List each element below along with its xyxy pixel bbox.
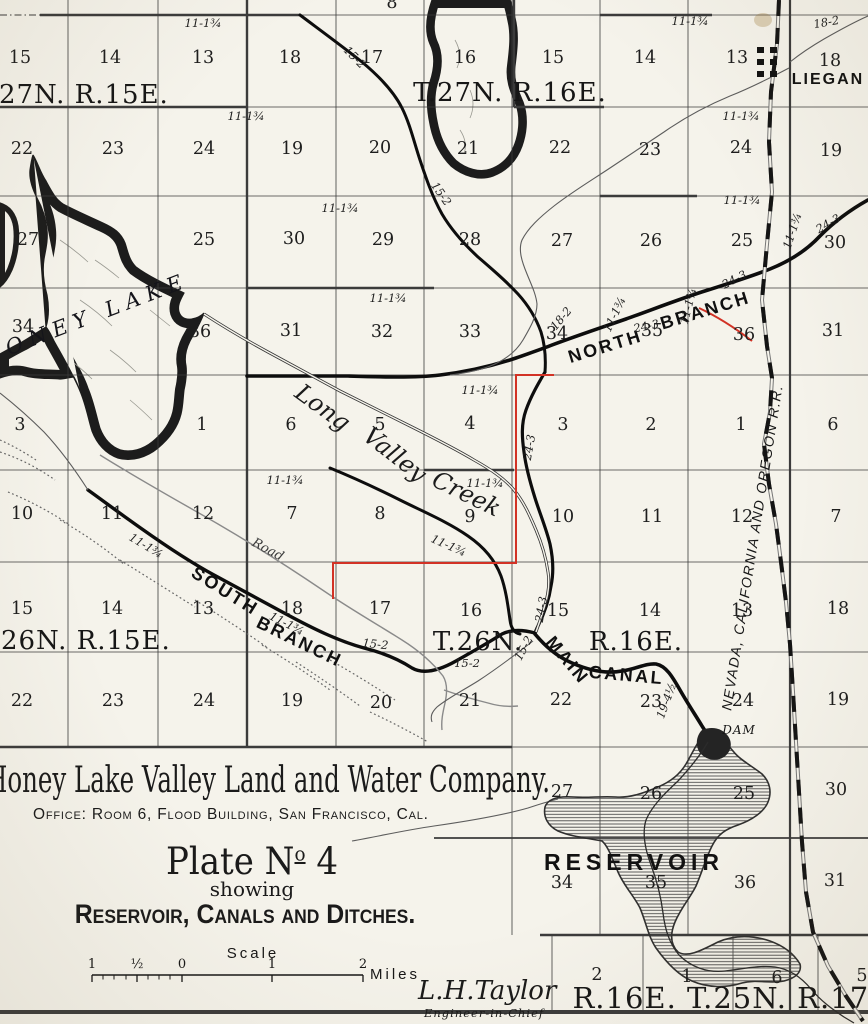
section-number: 25 [193,230,215,250]
section-number: 24 [193,139,215,159]
section-number: 14 [634,48,656,68]
map-label: R.16E. [589,627,683,657]
canal-annotation: 11-1¾ [723,109,760,123]
section-number: 23 [639,140,661,160]
scale-bar: Scale1½012Miles [88,945,420,983]
liegan-buildings [757,47,777,77]
canal-annotation: 15-2 [362,636,389,653]
section-number: 15 [11,599,33,619]
map-plate: 8151413181716151413182223241920212223241… [0,0,868,1024]
section-number: 27 [551,782,573,802]
canal-annotation: 11-1¾ [429,531,468,559]
map-label: 2 [359,957,367,972]
canal-annotation: 11-1¾ [322,201,359,215]
section-number: 21 [457,139,479,159]
section-number: 14 [101,599,123,619]
map-label: T.26N. R.15E. [0,626,171,656]
section-number: 13 [726,48,748,68]
section-number: 11 [101,504,123,524]
map-label: 0 [178,957,186,972]
section-number: 17 [369,599,391,619]
section-number: 22 [11,139,33,159]
section-number: 11 [641,507,663,527]
canal-annotation: 11-1¾ [600,295,628,334]
building-icon [770,47,777,53]
building-icon [757,47,764,53]
plate-subject: Reservoir, Canals and Ditches. [43,899,448,930]
canal-annotation: 18-2 [812,13,840,31]
section-number: 14 [99,48,121,68]
section-number: 6 [827,415,838,435]
section-number: 28 [459,230,481,250]
long-valley-creek [204,314,549,632]
canal-annotation: 15-2 [454,656,480,670]
section-number: 8 [374,504,385,524]
section-number: 22 [549,138,571,158]
building-icon [757,71,764,77]
map-label: ½ [131,957,144,972]
canal-annotation: 11-1¾ [724,193,761,207]
section-number: 26 [640,231,662,251]
building-icon [770,59,777,65]
section-number: 20 [369,138,391,158]
map-label: NORTH [566,326,645,367]
railroad [762,0,863,1021]
building-icon [757,59,764,65]
section-number: 35 [645,873,667,893]
section-number: 15 [542,48,564,68]
section-number: 1 [735,415,746,435]
map-label: T.27N. R.15E. [0,80,169,110]
map-label: Road [248,535,286,565]
section-number: 18 [819,51,841,71]
section-number: 20 [370,693,392,713]
section-number: 32 [371,322,393,342]
map-label: Long [289,378,356,437]
paper-stain [754,13,772,27]
section-number: 10 [552,507,574,527]
section-number: 22 [550,690,572,710]
canal-annotation: 11-1¾ [780,211,805,251]
section-number: 12 [192,504,214,524]
engineer-role: Engineer-in-Chief [424,1006,544,1020]
section-number: 30 [283,229,305,249]
map-label: T.26N. [433,627,523,657]
section-number: 4 [464,414,475,434]
section-number: 34 [551,873,573,893]
plate-showing: showing [142,877,362,901]
section-number: 22 [11,691,33,711]
section-number: 19 [281,691,303,711]
canal-annotation: 11-1¾ [185,16,222,30]
section-number: 24 [193,691,215,711]
section-number: 36 [734,873,756,893]
section-number: 14 [639,601,661,621]
section-number: 36 [189,322,211,342]
map-label: CANAL [588,662,665,689]
section-number: 21 [459,691,481,711]
map-label: LIEGAN [792,71,864,88]
section-number: 13 [192,48,214,68]
section-number: 3 [14,415,25,435]
company-title: Honey Lake Valley Land and Water Company… [0,760,550,801]
map-label: MAIN [542,632,593,688]
canal-annotation: 18-2 [547,304,574,333]
section-number: 7 [286,504,297,524]
plate-sup: o [294,842,305,866]
section-number: 27 [17,230,39,250]
section-number: 2 [645,415,656,435]
section-number: 18 [827,599,849,619]
canal-annotation: 11-1¾ [672,14,709,28]
section-number: 30 [825,780,847,800]
section-number: 16 [454,48,476,68]
canal-annotation: 11-1¾ [267,473,304,487]
section-number: 23 [102,691,124,711]
map-label: RESERVOIR [544,849,724,875]
map-label: 1 [268,957,276,972]
section-number: 18 [279,48,301,68]
section-number: 19 [281,139,303,159]
map-label: T.27N. R.16E. [413,78,607,108]
section-number: 31 [822,321,844,341]
section-number: 31 [280,321,302,341]
canal-annotation: 11-1¾ [127,530,166,561]
engineer-signature: L.H.Taylor [418,976,556,1006]
section-number: 30 [824,233,846,253]
section-number: 36 [733,325,755,345]
map-label: Miles [370,966,420,983]
lakes [0,0,526,459]
south-branch-feeder [0,393,88,490]
section-number: 27 [551,231,573,251]
canal-annotation: 11-1¾ [228,109,265,123]
section-number: 26 [640,784,662,804]
section-number: 6 [285,415,296,435]
section-number: 3 [557,415,568,435]
section-number: 25 [733,784,755,804]
building-icon [770,71,777,77]
map-label: NEVADA, CALIFORNIA AND OREGON R.R. [718,383,785,711]
section-number: 29 [372,230,394,250]
section-number: 19 [827,690,849,710]
section-number: 15 [547,601,569,621]
section-number: 33 [459,322,481,342]
canal-annotation: 11-1¾ [462,383,499,397]
canal-annotation: 11-1¾ [467,476,504,490]
map-canvas: 8151413181716151413182223241920212223241… [0,0,868,1024]
map-label: R.16E. T.25N. R.17E. [572,981,868,1015]
map-label: 1 [88,957,96,972]
section-number: 15 [9,48,31,68]
office-address: Office: Room 6, Flood Building, San Fran… [33,806,429,824]
section-number: 10 [11,504,33,524]
canal-annotation: 11-1¾ [370,291,407,305]
section-number: 31 [824,871,846,891]
section-number: 16 [460,601,482,621]
section-number: 24 [730,138,752,158]
section-number: 13 [192,599,214,619]
section-number: 8 [386,0,397,13]
section-number: 1 [196,415,207,435]
map-label: DAM [721,723,756,737]
section-number: 25 [731,231,753,251]
section-number: 23 [102,139,124,159]
section-number: 7 [830,507,841,527]
section-number: 19 [820,141,842,161]
